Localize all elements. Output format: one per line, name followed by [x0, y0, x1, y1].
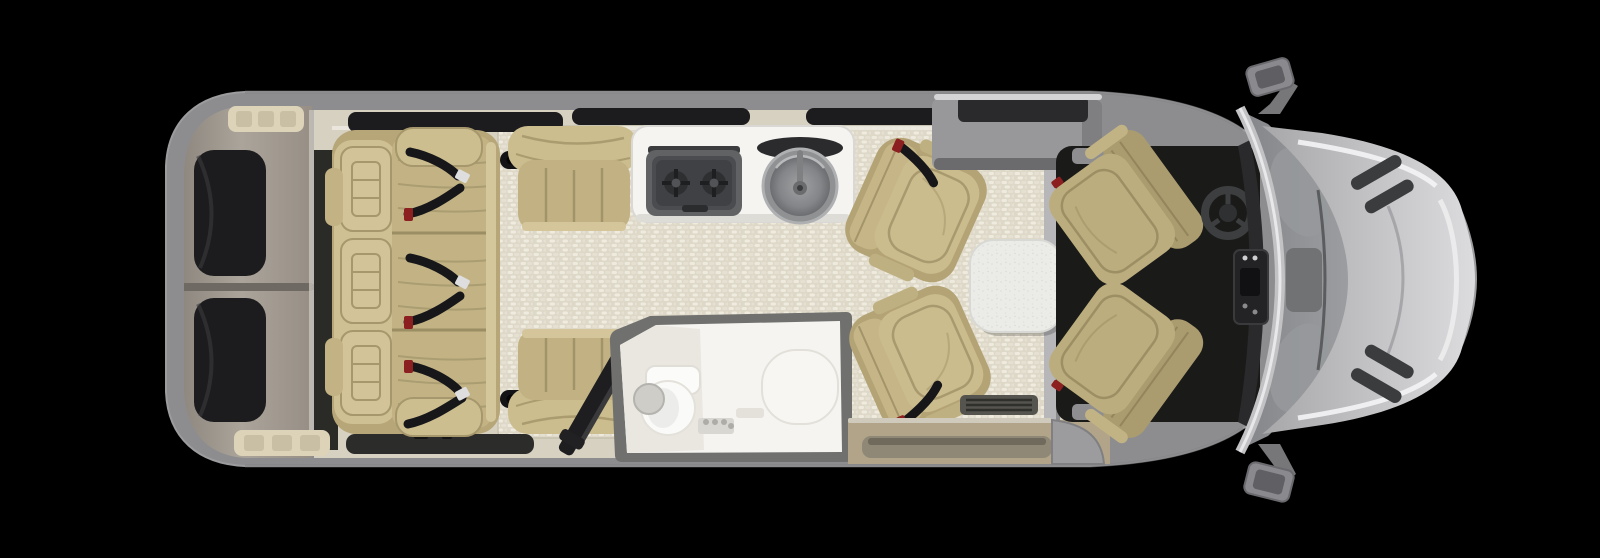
step-vent-grille [960, 395, 1038, 415]
sofa-back-segments [341, 147, 391, 415]
sofa-armrest-bottom [325, 338, 343, 396]
roof-vent-top [228, 106, 304, 132]
bathroom [610, 312, 852, 462]
floorplan-image [0, 0, 1600, 558]
galley-seat [508, 126, 638, 231]
kitchen-counter [632, 126, 854, 223]
sofa-front-edge [486, 142, 496, 422]
sofa-armrest-top [325, 168, 343, 226]
floorplan-svg [0, 0, 1600, 558]
door-edge-highlight [309, 110, 314, 456]
cooktop [646, 146, 742, 216]
toilet-lid [634, 384, 664, 414]
side-mirror-bottom [1243, 444, 1296, 503]
dining-table [970, 240, 1066, 336]
dashboard [1234, 250, 1268, 324]
door-divider [184, 283, 312, 291]
dash-center-through-glass [1286, 248, 1322, 312]
side-mirror-top [1245, 57, 1298, 114]
cab [1033, 118, 1268, 451]
roof-vent-bottom [234, 430, 330, 456]
rear-sofa [325, 128, 500, 436]
cooktop-handle [682, 205, 708, 212]
faucet-stem [797, 150, 803, 184]
shower-seat [762, 350, 838, 424]
top-window-2 [572, 108, 750, 125]
